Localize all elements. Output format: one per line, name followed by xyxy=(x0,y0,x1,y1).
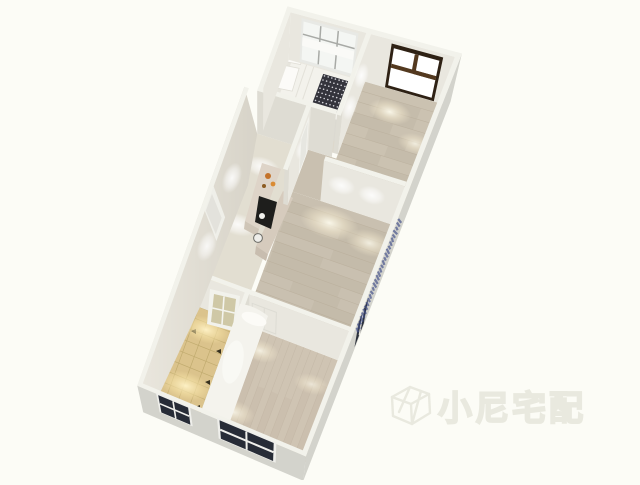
svg-text:小尼宅配: 小尼宅配 xyxy=(438,389,586,428)
